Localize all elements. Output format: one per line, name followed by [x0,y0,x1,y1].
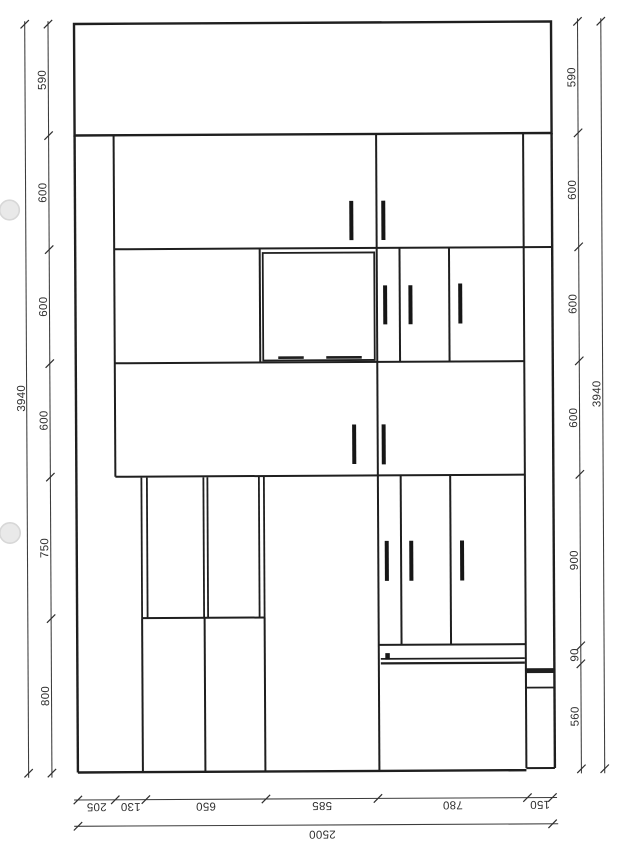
svg-text:600: 600 [38,297,50,317]
svg-text:600: 600 [567,294,579,314]
svg-text:600: 600 [567,180,579,200]
svg-text:600: 600 [39,410,51,430]
svg-text:205: 205 [87,800,107,812]
svg-text:900: 900 [569,550,581,570]
svg-text:750: 750 [39,538,51,558]
svg-text:585: 585 [312,799,332,811]
svg-text:600: 600 [37,183,49,203]
svg-text:590: 590 [37,70,49,90]
svg-text:600: 600 [568,408,580,428]
svg-text:3940: 3940 [591,380,603,407]
svg-text:90: 90 [569,648,581,661]
svg-text:130: 130 [121,800,141,812]
svg-text:3940: 3940 [16,385,28,412]
svg-text:780: 780 [443,798,463,810]
svg-text:560: 560 [570,706,582,726]
svg-text:800: 800 [40,686,52,706]
svg-text:150: 150 [530,798,550,810]
svg-text:650: 650 [196,800,216,812]
svg-text:2500: 2500 [309,828,336,840]
svg-text:590: 590 [566,67,578,87]
